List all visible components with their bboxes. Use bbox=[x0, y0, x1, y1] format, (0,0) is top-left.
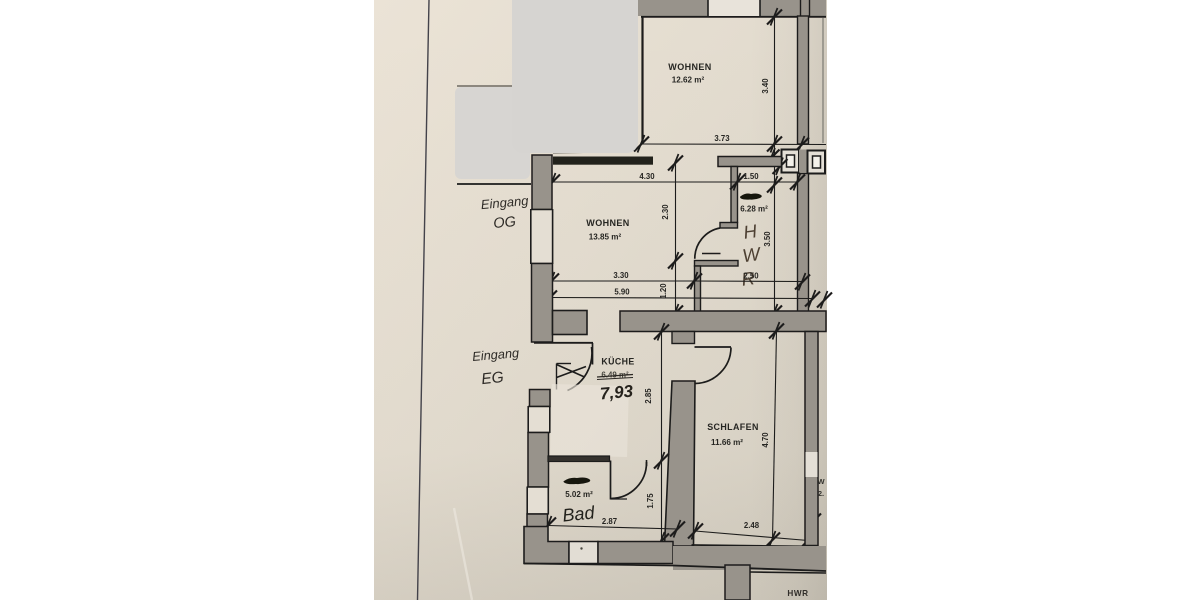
svg-text:5.90: 5.90 bbox=[614, 288, 630, 297]
svg-text:EG: EG bbox=[480, 369, 504, 388]
svg-text:OG: OG bbox=[493, 214, 517, 232]
svg-text:13.85 m²: 13.85 m² bbox=[589, 233, 622, 242]
svg-text:KÜCHE: KÜCHE bbox=[601, 357, 634, 367]
svg-text:2.48: 2.48 bbox=[744, 521, 760, 530]
svg-text:7,93: 7,93 bbox=[599, 382, 634, 404]
svg-text:2.87: 2.87 bbox=[602, 517, 617, 526]
svg-text:6.28 m²: 6.28 m² bbox=[740, 205, 768, 214]
svg-text:1.50: 1.50 bbox=[743, 172, 759, 181]
svg-text:11.66 m²: 11.66 m² bbox=[711, 438, 743, 447]
svg-text:4.30: 4.30 bbox=[639, 172, 655, 181]
svg-text:WOHNEN: WOHNEN bbox=[586, 218, 629, 228]
svg-text:HWR: HWR bbox=[787, 589, 808, 598]
svg-text:SCHLAFEN: SCHLAFEN bbox=[707, 422, 759, 432]
svg-text:1.75: 1.75 bbox=[646, 493, 655, 509]
svg-text:WOHNEN: WOHNEN bbox=[668, 62, 711, 72]
svg-text:2.50: 2.50 bbox=[743, 272, 759, 281]
svg-text:2.: 2. bbox=[818, 489, 824, 498]
svg-text:3.73: 3.73 bbox=[714, 134, 730, 143]
svg-text:2.85: 2.85 bbox=[644, 388, 653, 404]
svg-text:2.30: 2.30 bbox=[661, 204, 670, 220]
svg-text:4.70: 4.70 bbox=[761, 432, 770, 448]
svg-text:W: W bbox=[817, 477, 825, 486]
svg-text:3.30: 3.30 bbox=[613, 271, 629, 280]
svg-text:5.02 m²: 5.02 m² bbox=[565, 490, 593, 499]
svg-text:Bad: Bad bbox=[561, 502, 596, 525]
svg-text:1.20: 1.20 bbox=[659, 283, 668, 299]
svg-text:3.50: 3.50 bbox=[763, 231, 772, 247]
svg-text:12.62 m²: 12.62 m² bbox=[672, 76, 705, 85]
svg-text:3.40: 3.40 bbox=[761, 78, 770, 94]
